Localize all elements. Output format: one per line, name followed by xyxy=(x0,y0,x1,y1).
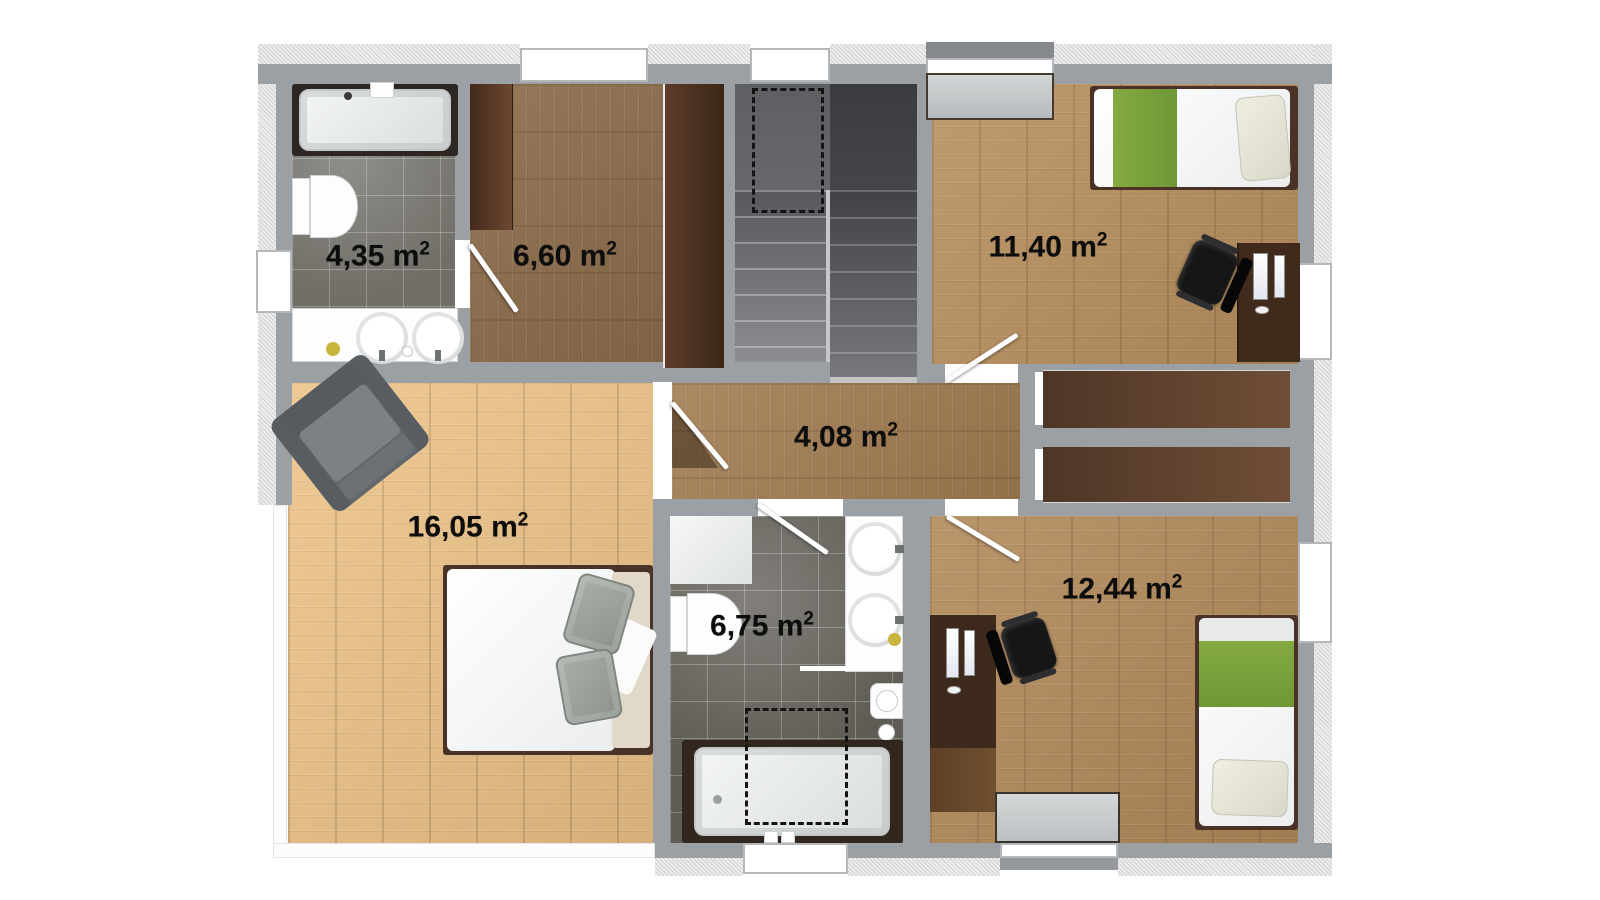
toilet-tank xyxy=(292,178,310,235)
sink-basin xyxy=(848,522,902,576)
window-right-1 xyxy=(1298,263,1332,360)
area-value: 12,44 m xyxy=(1062,573,1172,606)
bedroom-bottom-right-door-opening xyxy=(945,499,1018,516)
outer-wall-hatch-left xyxy=(258,313,276,505)
dresser xyxy=(926,73,1054,120)
outer-wall-hatch-top xyxy=(830,44,926,64)
shower-area xyxy=(670,516,752,584)
outer-wall-hatch-bottom xyxy=(1118,858,1332,876)
built-in-closet-top xyxy=(1043,370,1290,428)
sink-faucet xyxy=(895,545,904,553)
sink-faucet xyxy=(379,350,385,361)
drain-dot xyxy=(402,346,413,357)
mouse xyxy=(1255,306,1269,314)
window-top-1 xyxy=(520,48,648,82)
area-sup: 2 xyxy=(419,239,430,260)
wall-hall-closet xyxy=(1020,383,1035,499)
bed-blanket-green xyxy=(1113,89,1177,187)
area-value: 4,08 m xyxy=(794,421,887,454)
outer-wall-hatch-top xyxy=(258,44,520,64)
dormer-bay-bottom xyxy=(1000,858,1118,870)
bathtub xyxy=(299,89,451,151)
area-value: 11,40 m xyxy=(988,231,1096,264)
outer-wall-hatch-top xyxy=(1054,44,1332,64)
area-value: 6,60 m xyxy=(513,240,606,273)
bathtub-faucet xyxy=(344,92,352,100)
wall-master-bathroom xyxy=(653,499,670,845)
staircase-flight-left xyxy=(735,190,830,370)
area-sup: 2 xyxy=(518,510,529,531)
wall-master-bottom-light xyxy=(273,843,655,858)
area-value: 16,05 m xyxy=(408,511,518,544)
outer-wall-hatch-bottom xyxy=(655,858,743,876)
staircase-railing xyxy=(826,190,830,377)
area-label-hallway: 4,08 m2 xyxy=(794,420,898,455)
wall-master-left-light xyxy=(273,505,287,858)
area-sup: 2 xyxy=(1172,572,1183,593)
floor-plan-canvas: 4,35 m2 6,60 m2 11,40 m2 4,08 m2 16,05 m… xyxy=(0,0,1600,900)
bathtub-faucet xyxy=(781,831,795,843)
staircase-landing-edge xyxy=(830,377,917,383)
mouse xyxy=(947,686,961,694)
outer-wall-hatch-top xyxy=(648,44,750,64)
bed-topper xyxy=(1199,618,1294,642)
wardrobe-left xyxy=(470,84,513,230)
bathtub-drain xyxy=(713,795,722,804)
sink-faucet xyxy=(895,616,904,624)
bathroom-top-door-opening xyxy=(455,240,470,308)
master-door-opening xyxy=(653,382,672,499)
wall-bathroom-bedroom xyxy=(903,499,930,843)
outer-wall-hatch-bottom xyxy=(848,858,1000,876)
drain-dot xyxy=(878,724,895,741)
area-label-dressing-room: 6,60 m2 xyxy=(513,239,617,274)
bed-pillow xyxy=(554,647,623,726)
staircase-flight-right xyxy=(830,190,917,377)
window-left xyxy=(256,250,292,313)
monitor xyxy=(946,628,959,678)
dresser xyxy=(995,792,1120,843)
area-value: 6,75 m xyxy=(710,610,803,643)
bathtub-faucet xyxy=(764,831,778,843)
toilet-tank xyxy=(670,596,687,652)
sink-faucet xyxy=(435,350,441,361)
soap-dish xyxy=(326,342,340,356)
keyboard xyxy=(964,630,975,676)
area-label-bedroom-master: 16,05 m2 xyxy=(408,510,529,545)
keyboard xyxy=(1274,255,1285,298)
bed-pillow xyxy=(1211,759,1289,818)
staircase-upper-landing-right xyxy=(830,84,917,190)
dormer-bay-top xyxy=(926,42,1054,58)
outer-wall-hatch-right xyxy=(1314,643,1332,858)
built-in-closet-bottom xyxy=(1043,447,1290,503)
area-sup: 2 xyxy=(887,420,898,441)
wardrobe-right xyxy=(663,84,724,368)
area-label-bathroom-top-left: 4,35 m2 xyxy=(326,239,430,274)
bed-pillow xyxy=(1234,94,1291,182)
window-bottom-1 xyxy=(743,843,848,874)
closet-bottom-end-cap xyxy=(1035,449,1043,500)
soap-tray xyxy=(370,82,394,98)
area-label-bedroom-bottom-right: 12,44 m2 xyxy=(1062,572,1183,607)
outer-wall-hatch-left xyxy=(258,64,276,250)
window-bottom-2 xyxy=(1000,843,1118,858)
desk-cabinet xyxy=(930,748,996,812)
towel-rail xyxy=(800,666,857,671)
window-right-2 xyxy=(1298,542,1332,643)
closet-top-end-cap xyxy=(1035,372,1043,425)
area-sup: 2 xyxy=(803,609,814,630)
bidet-basin xyxy=(876,690,898,712)
wall-stairs-bedroom xyxy=(917,84,932,366)
area-value: 4,35 m xyxy=(326,240,419,273)
bed-blanket-green xyxy=(1199,641,1294,707)
area-sup: 2 xyxy=(1097,230,1108,251)
stair-opening-dashed xyxy=(752,88,824,213)
area-label-bedroom-top-right: 11,40 m2 xyxy=(988,230,1107,265)
soap-dish xyxy=(888,633,901,646)
window-top-2 xyxy=(750,48,830,82)
outer-wall-hatch-right xyxy=(1314,360,1332,542)
area-sup: 2 xyxy=(606,239,617,260)
area-label-bathroom-bottom: 6,75 m2 xyxy=(710,609,814,644)
wall-right xyxy=(1298,64,1314,843)
roof-window-dashed xyxy=(745,708,848,825)
